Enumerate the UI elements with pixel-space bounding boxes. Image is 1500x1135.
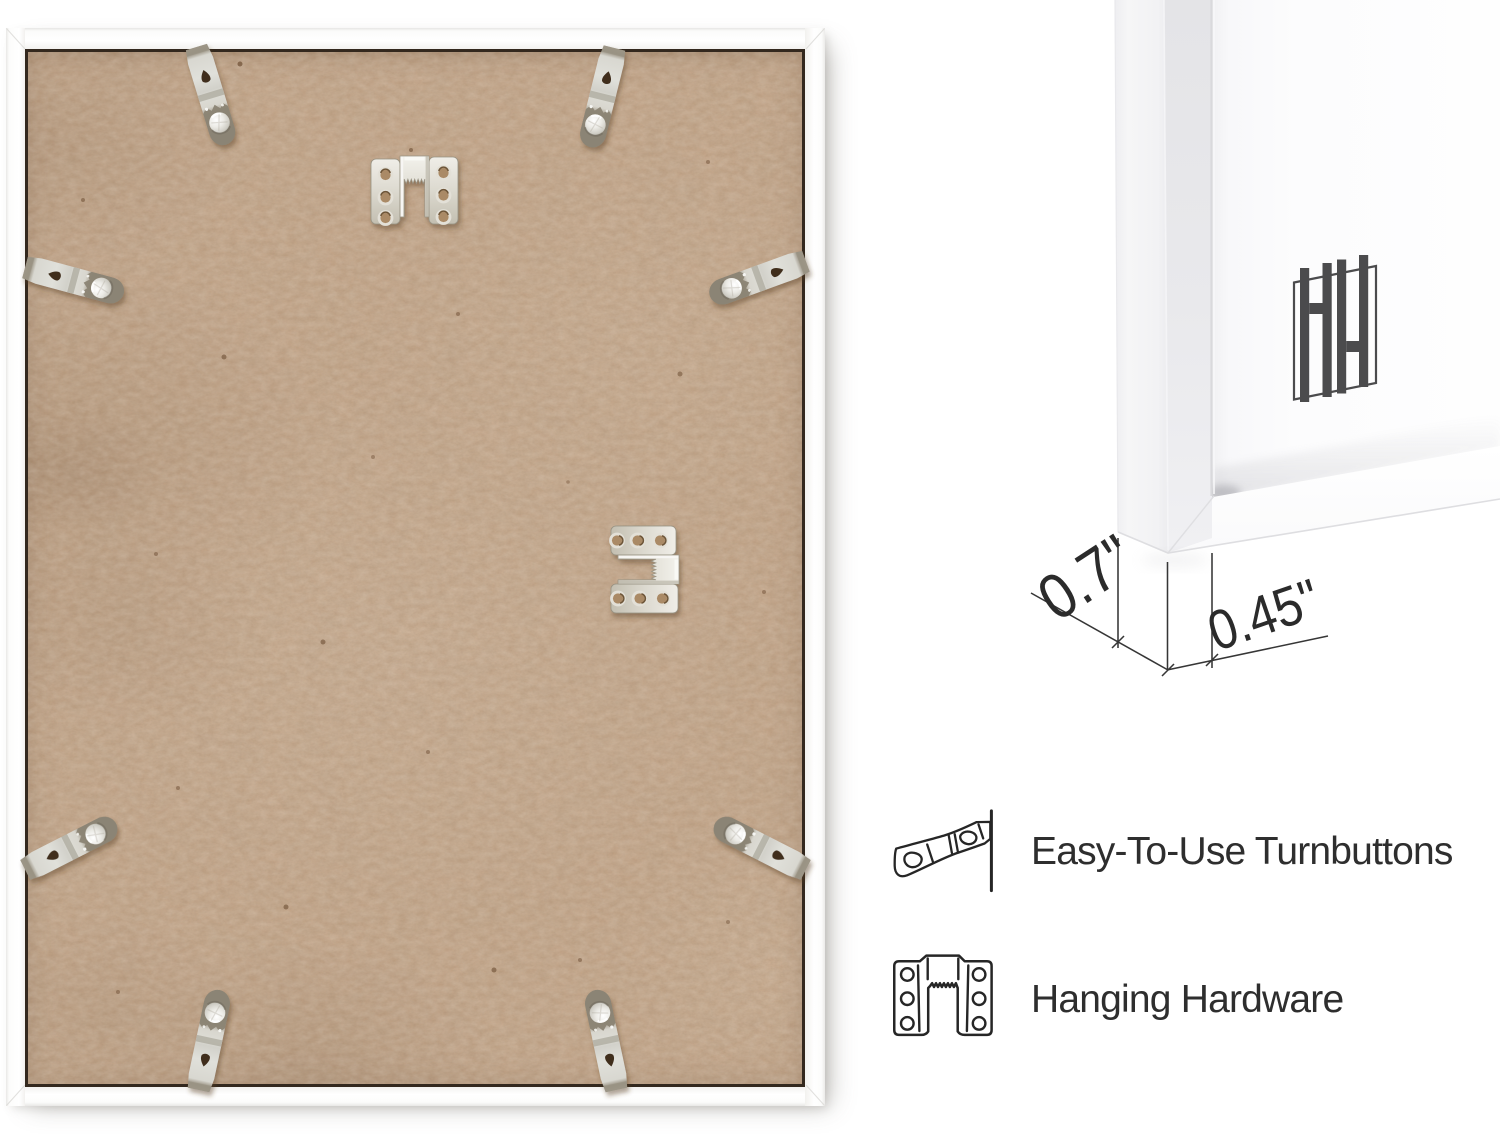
- svg-text:0.7": 0.7": [1025, 520, 1147, 634]
